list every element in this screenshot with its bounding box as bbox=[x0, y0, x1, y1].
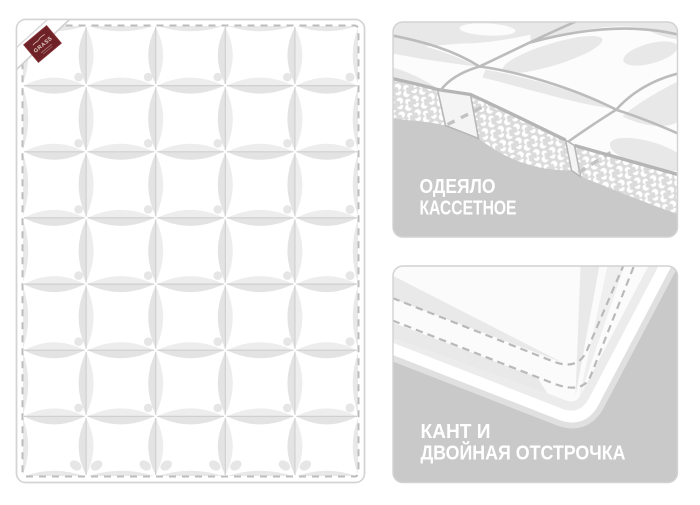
svg-text:ОДЕЯЛО: ОДЕЯЛО bbox=[420, 176, 496, 198]
svg-text:ДВОЙНАЯ ОТСТРОЧКА: ДВОЙНАЯ ОТСТРОЧКА bbox=[421, 441, 626, 465]
svg-text:КАССЕТНОЕ: КАССЕТНОЕ bbox=[420, 198, 517, 220]
svg-text:КАНТ И: КАНТ И bbox=[421, 421, 491, 443]
